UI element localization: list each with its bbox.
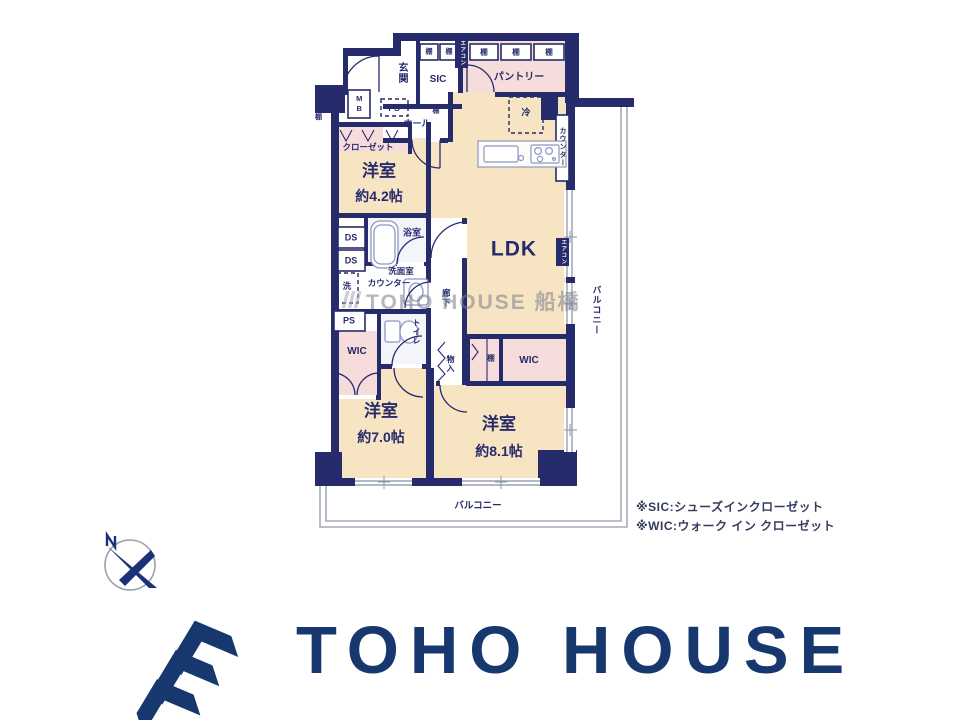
ldk-label: LDK <box>491 239 537 260</box>
west-room-size: 約4.2帖 <box>355 189 402 203</box>
shelf-label: 棚 <box>512 48 520 56</box>
washroom-label: 洗面室 <box>388 267 414 276</box>
north-arrow-icon <box>105 535 157 590</box>
sic-label: SIC <box>430 75 447 85</box>
logo-text: TOHO HOUSE <box>296 612 855 689</box>
shelf-label: 棚 <box>480 48 488 56</box>
room81-label: 洋室 <box>482 416 516 433</box>
pantry-label: パントリー <box>494 73 545 83</box>
shelf-label: 棚 <box>426 49 433 56</box>
balcony-right-label: バルコニー <box>592 285 601 335</box>
logo-mark <box>115 611 252 720</box>
wic-left-label: WIC <box>347 347 366 357</box>
meter-box-label: MB <box>355 94 363 114</box>
entrance-label: 玄関 <box>396 62 406 84</box>
watermark: TOHO HOUSE 船橋 <box>366 286 581 316</box>
ps-label: PS <box>343 317 355 326</box>
aircon-label: エアコン <box>459 40 465 66</box>
room70-label: 洋室 <box>364 403 398 420</box>
duct-space-label: DS <box>345 257 358 266</box>
ps-label: PS <box>388 104 399 113</box>
note-sic: ※SIC:シューズインクローゼット <box>636 498 824 515</box>
hall-label: ホール <box>403 120 430 129</box>
kitchen-counter-label: カウンター <box>559 127 566 167</box>
shelf-label: 棚 <box>433 108 440 115</box>
balcony-bottom-label: バルコニー <box>454 501 501 511</box>
room70-size: 約7.0帖 <box>357 430 404 444</box>
fridge-label: 冷 <box>521 109 530 118</box>
shelf-label: 棚 <box>545 48 553 56</box>
note-wic: ※WIC:ウォーク イン クローゼット <box>636 517 835 534</box>
duct-space-label: DS <box>345 234 358 243</box>
shelf-label: 棚 <box>487 354 495 362</box>
bath-label: 浴室 <box>403 229 421 238</box>
laundry-label: 洗 <box>343 282 352 291</box>
toilet-label: トイレ <box>412 319 420 346</box>
kitchen-icons <box>478 141 566 167</box>
storage-label: 物入 <box>446 355 454 373</box>
floorplan-page: 玄関 SIC 棚 棚 棚 棚 棚 エアコン パントリー 冷 MB PS ホール … <box>0 0 960 720</box>
aircon-label: エアコン <box>560 239 566 265</box>
closet-label: クローゼット <box>342 143 393 152</box>
wic-right-label: WIC <box>519 356 538 366</box>
room81-size: 約8.1帖 <box>475 444 522 458</box>
shelf-label: 棚 <box>446 49 453 56</box>
shelf-label: 棚 <box>315 113 322 121</box>
west-room-label: 洋室 <box>362 163 396 180</box>
